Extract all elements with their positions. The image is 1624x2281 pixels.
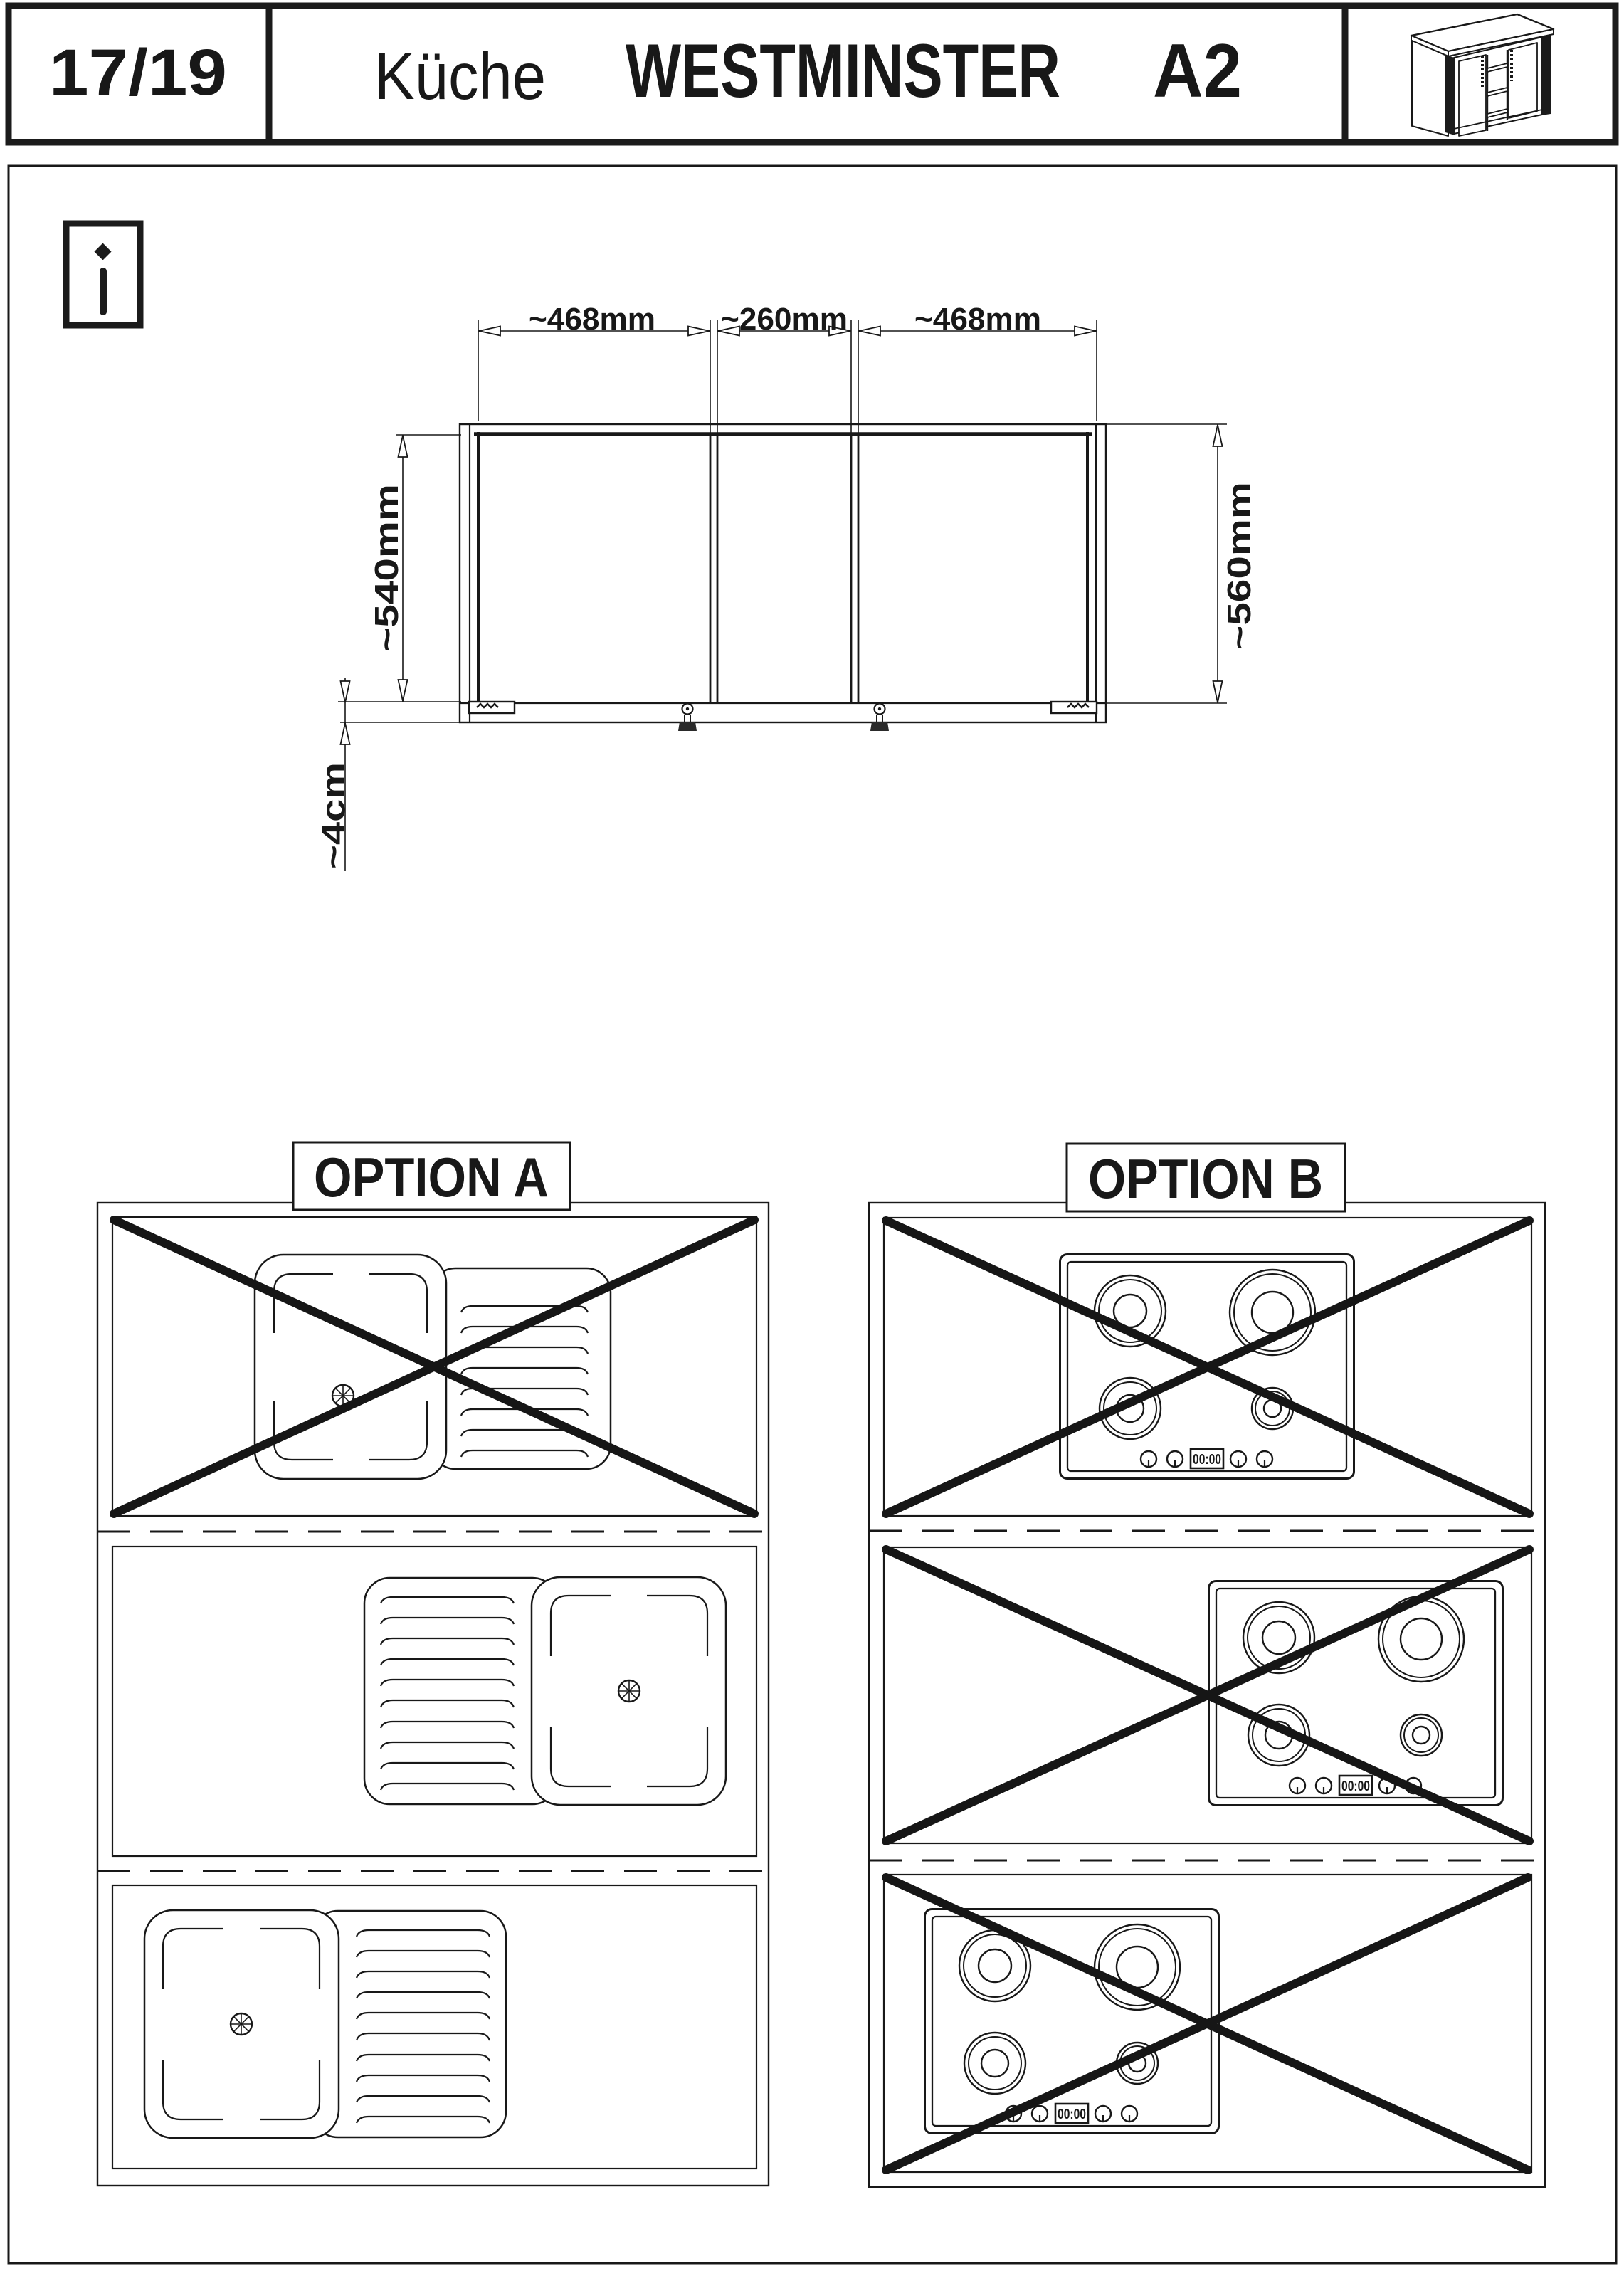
- svg-text:A2: A2: [1153, 28, 1242, 113]
- svg-text:Küche: Küche: [374, 39, 546, 113]
- svg-text:WESTMINSTER: WESTMINSTER: [626, 28, 1060, 113]
- svg-text:OPTION B: OPTION B: [1088, 1147, 1323, 1210]
- svg-text:~4cm: ~4cm: [315, 762, 352, 869]
- svg-text:~468mm: ~468mm: [529, 302, 655, 337]
- svg-text:OPTION A: OPTION A: [314, 1146, 549, 1208]
- svg-text:17/19: 17/19: [49, 36, 227, 109]
- svg-text:~560mm: ~560mm: [1220, 482, 1257, 650]
- svg-text:~260mm: ~260mm: [721, 302, 848, 337]
- svg-text:~468mm: ~468mm: [914, 302, 1041, 337]
- svg-text:~540mm: ~540mm: [368, 484, 405, 652]
